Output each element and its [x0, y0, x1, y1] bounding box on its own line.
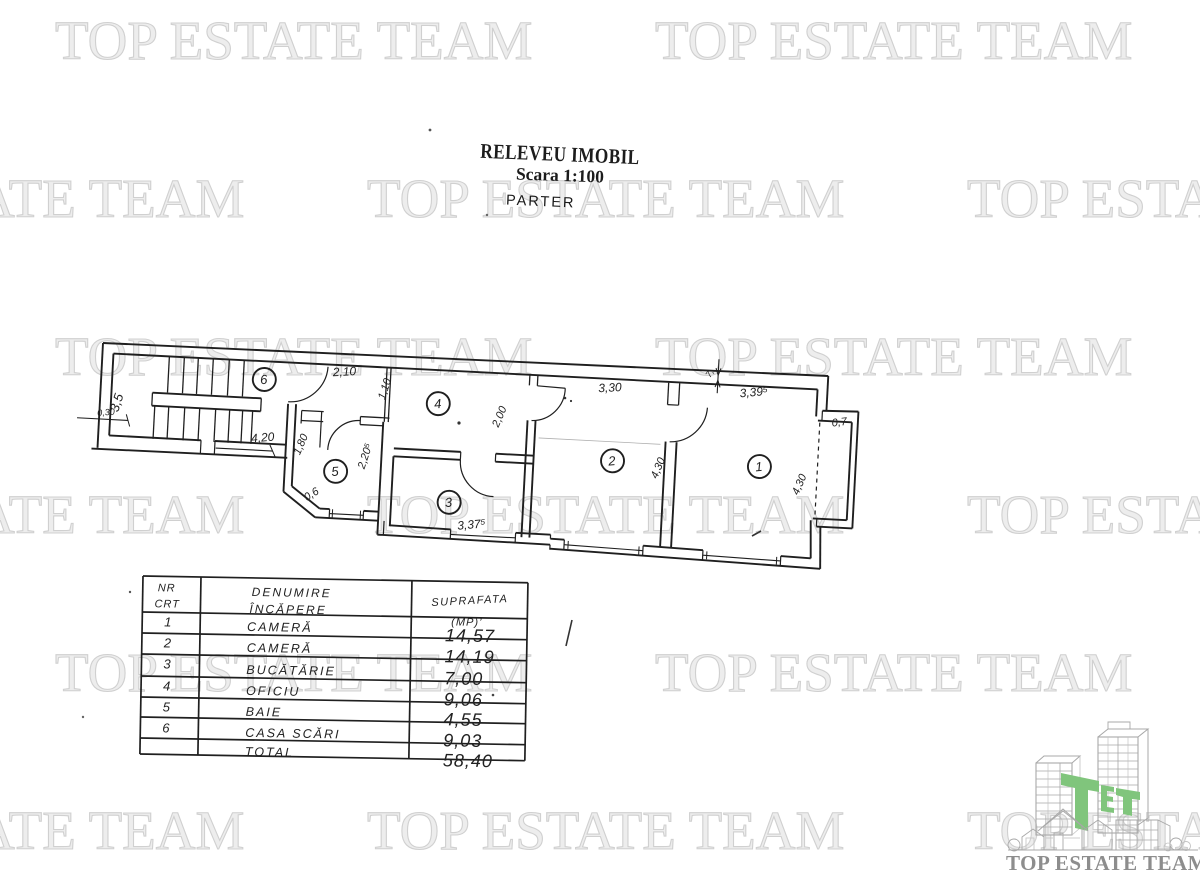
svg-text:0,7: 0,7 — [831, 416, 849, 430]
svg-text:3: 3 — [444, 494, 453, 510]
svg-text:3: 3 — [163, 656, 171, 671]
svg-text:14,57: 14,57 — [445, 625, 495, 646]
svg-text:CASA SCĂRI: CASA SCĂRI — [245, 725, 341, 742]
svg-text:3,30: 3,30 — [598, 380, 622, 395]
svg-text:SUPRAFATA: SUPRAFATA — [431, 593, 509, 609]
svg-text:9,03: 9,03 — [443, 730, 482, 751]
svg-text:2,00: 2,00 — [490, 404, 510, 430]
svg-text:4,30: 4,30 — [790, 472, 810, 497]
svg-text:2: 2 — [163, 635, 172, 650]
svg-text:7,00: 7,00 — [444, 668, 483, 689]
svg-text:TOTAL: TOTAL — [245, 745, 294, 760]
svg-text:1: 1 — [164, 614, 171, 629]
svg-text:OFICIU: OFICIU — [246, 684, 301, 699]
svg-text:ÎNCĂPERE: ÎNCĂPERE — [249, 601, 327, 617]
svg-text:CAMERĂ: CAMERĂ — [247, 640, 313, 656]
svg-text:4,55: 4,55 — [443, 709, 482, 730]
svg-text:0,30: 0,30 — [97, 407, 115, 418]
svg-text:5: 5 — [163, 699, 171, 714]
svg-text:DENUMIRE: DENUMIRE — [252, 585, 332, 600]
svg-text:2,20⁵: 2,20⁵ — [356, 442, 376, 472]
svg-text:2: 2 — [607, 453, 617, 469]
svg-text:3,39⁵: 3,39⁵ — [739, 384, 769, 400]
svg-text:7,: 7, — [703, 367, 715, 379]
svg-text:BAIE: BAIE — [246, 705, 283, 720]
svg-text:CRT: CRT — [154, 598, 180, 610]
svg-text:14,19: 14,19 — [444, 646, 494, 667]
svg-text:6: 6 — [162, 720, 170, 735]
svg-text:4,20: 4,20 — [250, 430, 275, 446]
svg-text:5: 5 — [331, 464, 340, 480]
svg-text:NR: NR — [158, 582, 176, 594]
svg-text:2,10: 2,10 — [331, 364, 356, 379]
svg-text:0,6: 0,6 — [302, 485, 322, 504]
svg-text:4: 4 — [163, 678, 170, 693]
svg-text:4: 4 — [433, 396, 442, 412]
svg-text:9,06: 9,06 — [444, 689, 483, 710]
svg-text:1,10: 1,10 — [376, 376, 394, 401]
svg-text:CAMERĂ: CAMERĂ — [247, 619, 313, 635]
svg-text:BUCĂTĂRIE: BUCĂTĂRIE — [246, 662, 336, 679]
svg-text:58,40: 58,40 — [443, 750, 493, 771]
svg-text:1: 1 — [755, 459, 764, 475]
svg-text:6: 6 — [259, 372, 268, 388]
svg-text:3,37⁵: 3,37⁵ — [457, 516, 487, 532]
